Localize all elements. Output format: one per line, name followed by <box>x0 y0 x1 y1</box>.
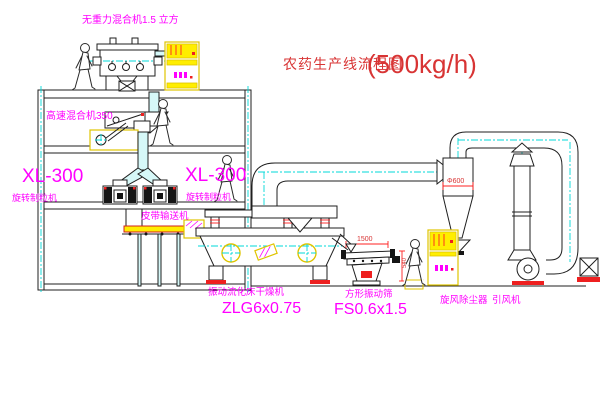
exhaust-duct <box>252 160 452 232</box>
label-fan: 引风机 <box>492 294 521 306</box>
granulator-left <box>103 180 137 204</box>
granulator-discharge-duct <box>126 209 142 227</box>
person-roof <box>72 44 95 91</box>
sieve-length-dim: 1500 <box>357 236 373 243</box>
control-cabinet-right <box>428 230 458 285</box>
dryer-hood <box>252 206 337 218</box>
label-granulator-left-name: 旋转制粒机 <box>12 192 57 203</box>
zero-gravity-mixer <box>90 38 168 91</box>
label-sieve-name: 方形振动筛 <box>345 288 393 300</box>
label-mixer-350: 高速混合机350 <box>46 109 113 122</box>
control-cabinet-top <box>165 42 199 90</box>
label-top-mixer: 无重力混合机1.5 立方 <box>82 13 179 26</box>
label-dryer-name: 振动流化床干燥机 <box>208 286 285 298</box>
granulator-right <box>143 180 177 204</box>
label-granulator-right-model: XL-300 <box>185 165 246 186</box>
label-granulator-left-model: XL-300 <box>22 166 83 187</box>
label-belt-conveyor: 皮带输送机 <box>141 210 189 222</box>
label-sieve-model: FS0.6x1.5 <box>334 301 407 318</box>
fluid-bed-dryer <box>196 210 353 284</box>
label-cyclone: 旋风除尘器 <box>440 294 488 306</box>
drawing-canvas: Φ600 <box>0 0 600 403</box>
cad-flow-diagram: Φ600 <box>0 0 600 403</box>
cyclone-diameter-dim: Φ600 <box>447 178 464 185</box>
label-granulator-right-name: 旋转制粒机 <box>186 191 231 202</box>
label-dryer-model: ZLG6x0.75 <box>222 300 301 317</box>
small-yellow-box <box>405 280 423 289</box>
induced-draft-fan <box>512 258 600 285</box>
diagram-title-capacity: (500kg/h) <box>367 49 477 79</box>
exhaust-stack <box>508 143 536 268</box>
